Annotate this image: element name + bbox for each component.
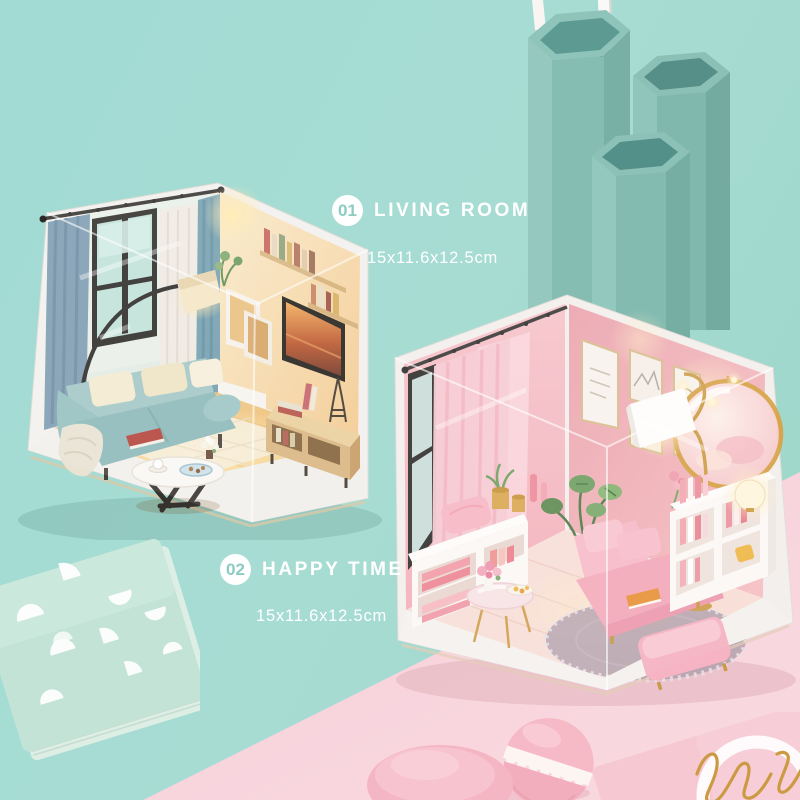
pink-notebook <box>585 712 800 800</box>
product-badge-2: 02 <box>220 554 251 585</box>
product-photo-scene: 01 LIVING ROOM 15x11.6x12.5cm 02 HAPPY T… <box>0 0 800 800</box>
acrylic-cover <box>395 295 793 690</box>
product-title-1: LIVING ROOM <box>374 200 530 222</box>
mint-notebook <box>0 508 200 800</box>
product-dimensions-1: 15x11.6x12.5cm <box>367 249 498 268</box>
product-label-2: 02 HAPPY TIME <box>220 554 404 585</box>
product-dimensions-2: 15x11.6x12.5cm <box>256 607 387 626</box>
dollhouse-living-room <box>10 168 382 540</box>
product-title-2: HAPPY TIME <box>262 559 404 581</box>
dollhouse-happy-time <box>378 278 800 710</box>
macaron-flat <box>367 745 513 800</box>
product-label-1: 01 LIVING ROOM <box>332 195 530 226</box>
macarons <box>355 705 595 800</box>
product-badge-1: 01 <box>332 195 363 226</box>
